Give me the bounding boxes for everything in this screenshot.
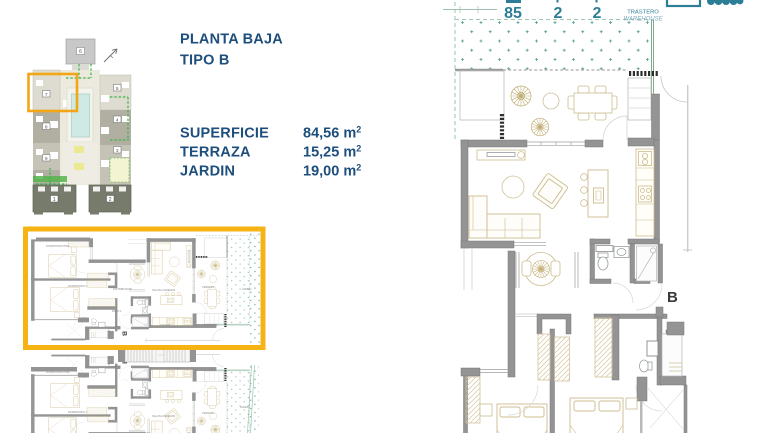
svg-text:JARDIN: JARDIN bbox=[240, 405, 249, 409]
svg-text:6: 6 bbox=[79, 49, 82, 55]
svg-text:2: 2 bbox=[554, 5, 563, 22]
svg-text:3: 3 bbox=[116, 148, 119, 154]
svg-text:COCINA: COCINA bbox=[160, 323, 170, 327]
svg-text:1: 1 bbox=[53, 197, 56, 203]
svg-text:TERRAZA: TERRAZA bbox=[202, 411, 214, 415]
svg-text:WAREHOUSE: WAREHOUSE bbox=[623, 17, 663, 23]
svg-text:84,56 m2: 84,56 m2 bbox=[303, 125, 361, 142]
svg-text:DORMITORIO 2: DORMITORIO 2 bbox=[68, 410, 88, 414]
svg-text:TRASTERO: TRASTERO bbox=[627, 10, 659, 16]
svg-text:8: 8 bbox=[45, 124, 48, 130]
svg-text:PLANTA BAJA: PLANTA BAJA bbox=[180, 32, 283, 48]
svg-text:85: 85 bbox=[504, 5, 522, 22]
svg-text:JARDIN: JARDIN bbox=[242, 287, 251, 291]
svg-text:SUPERFICIE: SUPERFICIE bbox=[180, 126, 269, 142]
svg-text:TIPO B: TIPO B bbox=[180, 53, 230, 69]
svg-text:TERRAZA: TERRAZA bbox=[180, 145, 251, 161]
svg-text:2: 2 bbox=[109, 197, 112, 203]
svg-text:TERRAZA: TERRAZA bbox=[202, 285, 214, 289]
svg-text:DORMITORIO 2: DORMITORIO 2 bbox=[68, 284, 88, 288]
svg-text:9: 9 bbox=[45, 156, 48, 162]
svg-text:5: 5 bbox=[116, 86, 119, 92]
svg-text:LAVADERO: LAVADERO bbox=[204, 323, 218, 327]
svg-text:4: 4 bbox=[116, 117, 119, 123]
svg-text:DISTRIBUIDOR: DISTRIBUIDOR bbox=[113, 287, 132, 291]
svg-text:SALON-COMEDOR: SALON-COMEDOR bbox=[152, 414, 175, 418]
svg-text:15,25 m2: 15,25 m2 bbox=[303, 144, 361, 161]
svg-text:DORMITORIO PPAL: DORMITORIO PPAL bbox=[46, 244, 71, 248]
svg-text:19,00 m2: 19,00 m2 bbox=[303, 163, 361, 180]
svg-text:JARDIN: JARDIN bbox=[180, 164, 235, 180]
svg-text:SALON-COMEDOR: SALON-COMEDOR bbox=[152, 288, 175, 292]
svg-text:7: 7 bbox=[45, 92, 48, 98]
svg-text:2: 2 bbox=[593, 5, 602, 22]
